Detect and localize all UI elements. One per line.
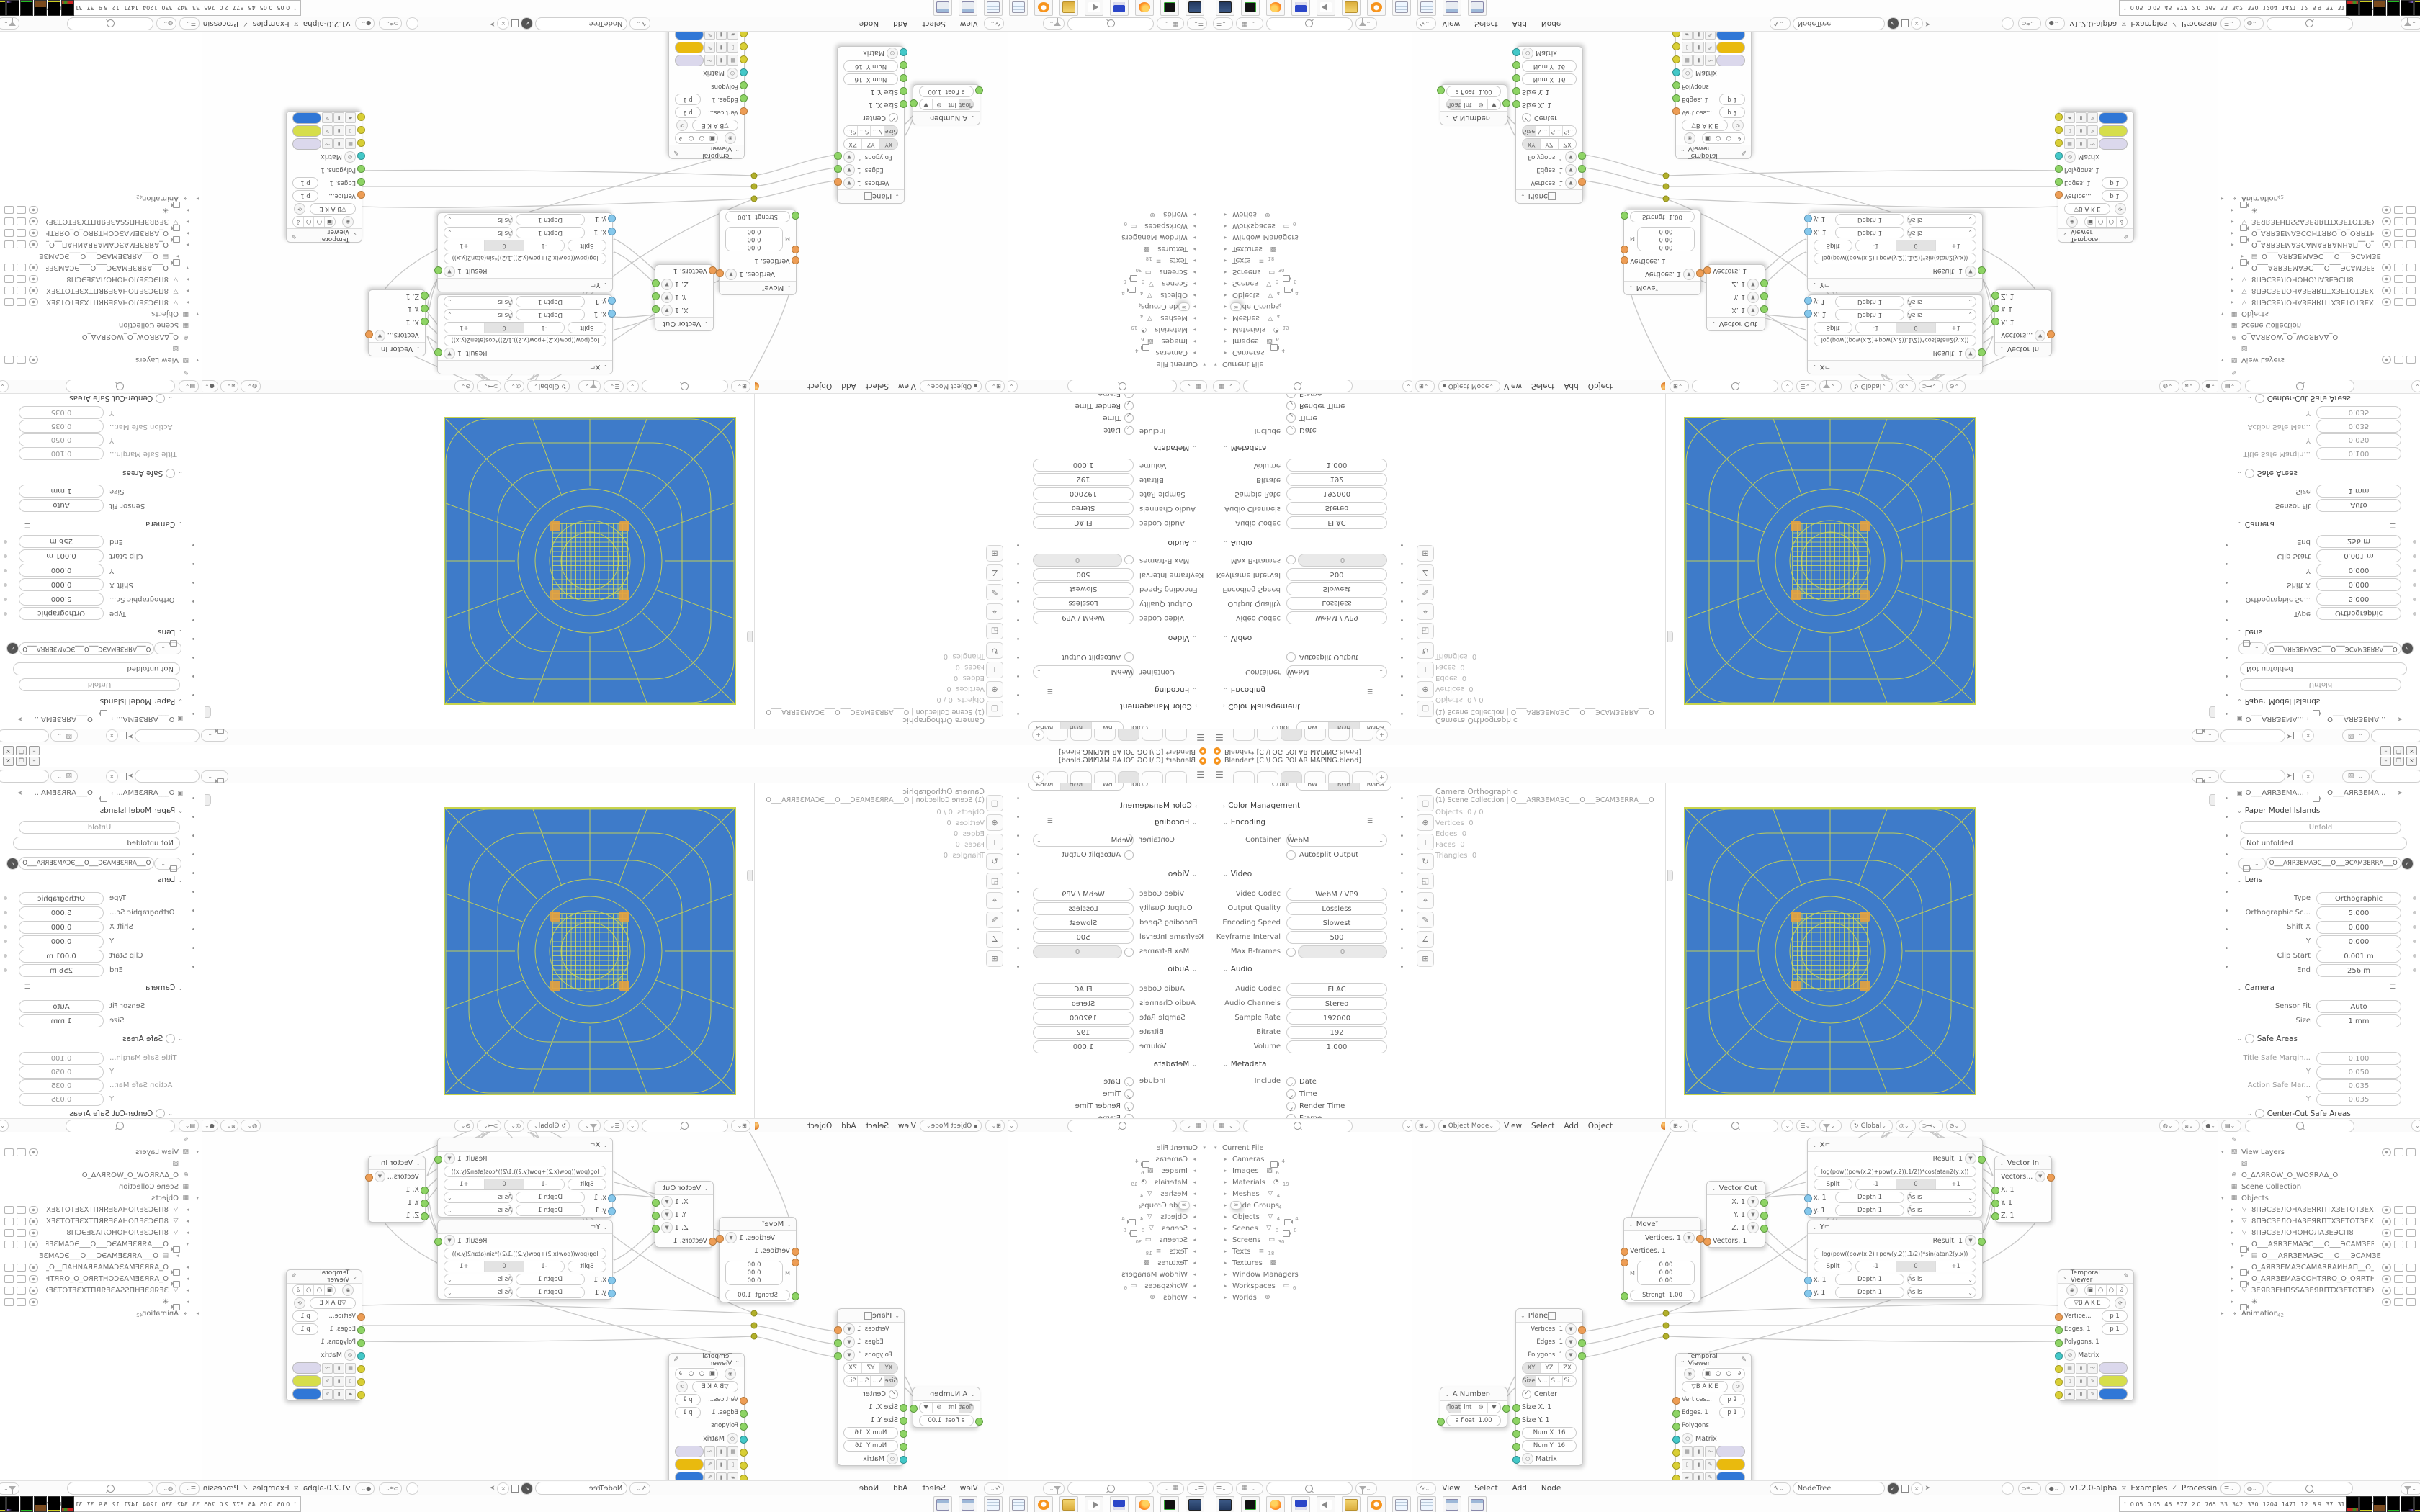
node-formula-x[interactable]: ⌄X⌐ Result. 1▼ log(pow((pow(x,2)+pow(y,2…	[1807, 1138, 1983, 1218]
outliner-row[interactable]: ▾ O___АЯRЗЕМАЭС___О___ЭСАМЗЕRRА	[2221, 262, 2418, 274]
editor-type-button[interactable]: ☰⌄	[1213, 18, 1233, 30]
metadata-check-row[interactable]: Render Time	[1286, 400, 1347, 412]
filter-button[interactable]: ⌄	[1819, 1120, 1842, 1132]
viewport-b[interactable]	[1665, 783, 2218, 1118]
datablock-row[interactable]: ▸ Meshes 4	[1214, 1188, 1407, 1200]
gizmo-dropdown[interactable]: ◎⌄	[1896, 1120, 1916, 1132]
wrap-plus[interactable]: +1	[444, 1179, 484, 1189]
node-move[interactable]: ⌄Move⤒ Vertices. 1▼ Vertices. 1 M 0.00 0…	[1623, 210, 1701, 295]
wrap-zero[interactable]: 0	[484, 323, 524, 333]
physics-icon[interactable]: •	[1011, 960, 1025, 974]
menu-view[interactable]: View	[1442, 19, 1460, 28]
sidebar-toggle-handle[interactable]	[205, 794, 211, 806]
datablock-name-field[interactable]: O___АЯRЗЕМАЭС___О___ЭСАМЗЕRRА___О	[19, 642, 154, 655]
prop-value[interactable]: 0.000	[19, 935, 104, 948]
datablock-row[interactable]: ▸ Window Managers	[1214, 232, 1407, 243]
datablock-row[interactable]: ▸ Scenes 8 8	[1013, 278, 1206, 289]
metadata-check-row[interactable]: Date	[1286, 424, 1347, 436]
expand-arrow-icon[interactable]: ▸	[1188, 212, 1196, 217]
expand-arrow-icon[interactable]: ▸	[2221, 196, 2229, 202]
pin-icon[interactable]: ➤	[490, 20, 496, 27]
transform-tool-icon[interactable]: ⌖	[1417, 603, 1434, 620]
modifier-icon[interactable]: •	[1395, 575, 1409, 589]
float-toggle[interactable]: float	[1447, 99, 1461, 109]
datablock-row[interactable]: ▸ Workspaces 6	[1013, 220, 1206, 232]
prop-value[interactable]: 256 m	[2316, 964, 2401, 977]
socket-color-in[interactable]	[357, 1365, 365, 1373]
outliner-row[interactable]: ▸ 8ПЭСЗЕЛОНÖНОЛАЗЕЭСП8	[2, 274, 199, 285]
draw-circle2-toggle[interactable]: ○	[686, 1369, 696, 1379]
outliner-row[interactable]: ▸ 8ПЭСЗЕЛОНАЗЕЯRПТХЗЕТОТЗЕХТПЯI	[2, 297, 199, 308]
editor-type-button[interactable]: ☰⌄	[179, 18, 200, 30]
presets-icon[interactable]: ☰	[2390, 521, 2396, 528]
notepad-icon[interactable]	[984, 0, 1003, 16]
numy-field[interactable]: Num Y 16	[1522, 60, 1577, 72]
hide-viewport-eye-icon[interactable]	[29, 1148, 38, 1156]
expand-arrow-icon[interactable]: ▸	[1188, 1191, 1196, 1197]
asis-dropdown[interactable]: As is⌄	[1907, 1287, 1976, 1298]
scene-selector[interactable]: ⌄ ➤ ×	[106, 729, 228, 742]
snap-button[interactable]: ⊃⌗⌄	[2018, 1482, 2041, 1495]
output-icon[interactable]: •	[2220, 669, 2233, 683]
wrap-plus[interactable]: +1	[1936, 1179, 1976, 1189]
animate-dot[interactable]	[4, 540, 7, 544]
expand-arrow-icon[interactable]: ▸	[181, 1264, 189, 1270]
prop-value[interactable]: 1 mm	[19, 485, 104, 498]
outliner-row[interactable]: ▸ ✳	[2, 1296, 199, 1308]
prop-value[interactable]: 500	[1033, 568, 1134, 581]
disable-render-camera-icon[interactable]	[2406, 356, 2416, 364]
disable-viewport-icon[interactable]	[2394, 299, 2403, 307]
socket-x-in[interactable]	[608, 1194, 616, 1202]
wrap-minus[interactable]: -1	[524, 1261, 564, 1272]
disable-viewport-icon[interactable]	[17, 1148, 26, 1156]
face-color-swatch[interactable]	[675, 32, 704, 40]
expand-arrow-icon[interactable]: ▸	[181, 1299, 189, 1305]
socket-color-in[interactable]	[357, 139, 365, 147]
close-icon[interactable]: ×	[2302, 730, 2314, 742]
p-field[interactable]: p 1	[2102, 1310, 2128, 1322]
checkbox-checked[interactable]	[1286, 413, 1296, 423]
node-header[interactable]: ⌄Y⌐	[1808, 1220, 1982, 1234]
calculator-icon[interactable]	[1443, 1496, 1461, 1512]
render-icon[interactable]: •	[1011, 688, 1025, 701]
expand-arrow-icon[interactable]: ▸	[1188, 1295, 1196, 1300]
socket-numx-in[interactable]	[900, 74, 907, 82]
axis-xy[interactable]: XY	[879, 139, 897, 149]
graph-applet[interactable]	[61, 0, 74, 16]
disable-viewport-icon[interactable]	[2394, 1148, 2403, 1156]
node-header[interactable]: ⌄Y⌐	[438, 278, 612, 292]
asis-dropdown[interactable]: As is⌄	[1907, 1205, 1976, 1216]
outliner-row[interactable]: ▸ O___АЯRЗЕМАЭС___О___ЭСАМЗЕ	[2, 1250, 199, 1261]
vector-y-field[interactable]: 0.00	[726, 1269, 782, 1277]
close-button[interactable]: ×	[2406, 757, 2417, 766]
socket-color-in[interactable]	[2055, 1378, 2063, 1386]
outliner-row[interactable]: O_ΔΛЯROW_O_WOЯRΛΔ_О	[2221, 1169, 2418, 1181]
depth-field[interactable]: Depth 1	[1835, 227, 1904, 238]
socket-sizex-in[interactable]	[1512, 1404, 1520, 1412]
display-mode-button[interactable]: ◍⌄	[156, 18, 176, 30]
socket-matrix-in[interactable]	[2055, 1352, 2063, 1360]
disable-render-camera-icon[interactable]	[2406, 1264, 2416, 1272]
prop-value[interactable]: 0.000	[19, 564, 104, 577]
expand-arrow-icon[interactable]: ▸	[2231, 1230, 2239, 1236]
unlink-icon[interactable]: ×	[1911, 1482, 1923, 1495]
outliner-row[interactable]: ▸ O_АЯRЗЕМАЭСАМАRRАИНАП__О__ПА	[2221, 239, 2418, 251]
expand-arrow-icon[interactable]: ▸	[191, 196, 199, 202]
socket-x-in[interactable]	[1991, 1187, 1999, 1194]
socket-vector-in[interactable]	[1621, 246, 1628, 253]
node-header[interactable]: ⌄Plane	[838, 1309, 904, 1323]
outliner-row[interactable]: ▸ O_АЯRЗЕМАЭСОНТЯRО_О_ОЯRТНОЭСУ	[2221, 1273, 2418, 1284]
wrap-zero[interactable]: 0	[484, 240, 524, 251]
center-cut-panel[interactable]: ⌄Center-Cut Safe Areas	[69, 1109, 173, 1118]
menu-node[interactable]: Node	[1541, 19, 1561, 28]
expand-arrow-icon[interactable]: ▾	[2221, 311, 2229, 317]
wrap-minus[interactable]: -1	[1856, 323, 1896, 333]
prop-value[interactable]: Stereo	[1033, 997, 1134, 1010]
socket-matrix-in[interactable]	[2055, 152, 2063, 160]
animate-dot[interactable]	[4, 612, 7, 616]
transform-tool-icon[interactable]: ⌖	[1417, 892, 1434, 909]
animate-dot[interactable]	[2413, 583, 2416, 587]
float-toggle[interactable]: float	[959, 1403, 973, 1413]
viewlayer-selector[interactable]: ⌄	[2342, 729, 2420, 742]
rotate-tool-icon[interactable]: ↻	[1417, 642, 1434, 659]
move-tool-icon[interactable]: +	[986, 834, 1003, 850]
collapse-chevron-icon[interactable]: ⌄	[0, 1120, 9, 1132]
node-header[interactable]: ⌄X⌐	[438, 1138, 612, 1152]
folder-icon[interactable]	[1342, 1496, 1361, 1512]
disable-render-camera-icon[interactable]	[2406, 1275, 2416, 1283]
display-mode-button[interactable]: ⌄	[1157, 1482, 1184, 1495]
tool-icon[interactable]: •	[1395, 706, 1409, 720]
disable-viewport-icon[interactable]	[17, 230, 26, 238]
object-icon[interactable]: •	[1395, 594, 1409, 608]
prop-value[interactable]: WebM / VP9	[1286, 611, 1387, 624]
color-mode-rgb[interactable]: RGB	[1329, 722, 1361, 729]
depth-field[interactable]: Depth 1	[516, 296, 585, 307]
expand-arrow-icon[interactable]: ▸	[1188, 1168, 1196, 1174]
socket-vector-in[interactable]	[792, 1259, 799, 1266]
expand-arrow-icon[interactable]: ▸	[2231, 276, 2239, 282]
center-cut-panel[interactable]: ⌄Center-Cut Safe Areas	[2247, 394, 2351, 403]
workspace-tab[interactable]	[1257, 771, 1278, 784]
audio-panel[interactable]: ⌄Audio	[1168, 539, 1197, 547]
filter-button[interactable]: ⌄	[1355, 1482, 1378, 1495]
vector-y-field[interactable]: 0.00	[726, 235, 782, 243]
socket-color-in[interactable]	[1672, 55, 1680, 63]
overlays-button[interactable]: ◍⌄	[2159, 380, 2179, 392]
socket-edges-in[interactable]	[357, 178, 365, 186]
disable-viewport-icon[interactable]	[2394, 241, 2403, 249]
datablock-row[interactable]: ▸ Materials 19	[1013, 1176, 1206, 1188]
wrap-minus[interactable]: -1	[1856, 1261, 1896, 1272]
socket-vertices-in[interactable]	[2055, 1313, 2063, 1321]
socket-y-in[interactable]	[1991, 305, 1999, 312]
gpu-icon[interactable]	[406, 18, 418, 30]
checkbox-checked[interactable]	[1124, 1102, 1134, 1111]
autosplit-checkbox[interactable]	[1286, 652, 1296, 662]
numx-field[interactable]: Num X 16	[843, 1427, 898, 1439]
unfold-button[interactable]: Unfold	[19, 821, 180, 834]
menu-select[interactable]: Select	[1474, 1484, 1497, 1493]
datablock-row[interactable]: ▸ Workspaces 6	[1013, 1280, 1206, 1292]
mode-n[interactable]: N...	[1536, 1376, 1550, 1386]
datablock-row[interactable]: ▸ Images 6	[1214, 1165, 1407, 1176]
disable-viewport-icon[interactable]	[17, 1229, 26, 1237]
editor-type-button[interactable]: ☰⌄	[179, 1482, 200, 1495]
prop-value[interactable]: 1.000	[1286, 459, 1387, 472]
measure-tool-icon[interactable]: ∠	[986, 931, 1003, 948]
toolbar-toggle-handle[interactable]	[1667, 631, 1673, 642]
gizmo-dropdown[interactable]: ◎⌄	[504, 1120, 524, 1132]
expand-arrow-icon[interactable]: ▸	[191, 1310, 199, 1316]
pin-icon[interactable]: ➤	[1925, 1485, 1931, 1492]
object-icon[interactable]: •	[1011, 594, 1025, 608]
cursor-tool-icon[interactable]: ⊕	[1417, 681, 1434, 698]
maxb-value[interactable]: 0	[1298, 945, 1387, 958]
search-input[interactable]	[67, 17, 153, 30]
eye-icon[interactable]: ◉	[342, 216, 354, 228]
sidebar-toggle-handle[interactable]	[2209, 706, 2215, 718]
floppy-64-icon[interactable]	[1291, 1496, 1310, 1512]
outliner-row[interactable]: ▾ O___АЯRЗЕМАЭС___О___ЭСАМЗЕRRА	[2, 1238, 199, 1250]
menu-add[interactable]: Add	[841, 382, 856, 391]
wrap-plus[interactable]: +1	[444, 323, 484, 333]
node-vector-out[interactable]: ⌄Vector Out X. 1▼ Y. 1▼ Z. 1▼ Vectors. 1	[655, 1181, 714, 1248]
expand-arrow-icon[interactable]: ▾	[181, 1241, 189, 1247]
wrap-plus[interactable]: +1	[1936, 1261, 1976, 1272]
outliner-row[interactable]: ▸ O_АЯRЗЕМАЭСАМАRRАИНАП__О__ПА	[2, 239, 199, 251]
filter-button[interactable]: ⌄	[2401, 18, 2420, 30]
node-vector-in[interactable]: ⌄Vector In Vectors...▼ X. 1 Y. 1 Z. 1	[368, 1156, 426, 1223]
socket-color-in[interactable]	[2055, 1365, 2063, 1373]
physics-icon[interactable]: •	[1395, 538, 1409, 552]
pin-icon[interactable]: ➤	[1925, 20, 1931, 27]
axis-yz[interactable]: YZ	[861, 139, 879, 149]
prop-value[interactable]: Stereo	[1286, 502, 1387, 515]
mode-si[interactable]: Si...	[844, 1376, 857, 1386]
node-plane[interactable]: ⌄Plane Vertices. 1▼ Edges. 1▼ Polygons. …	[837, 1308, 905, 1466]
depth-field[interactable]: Depth 1	[516, 309, 585, 320]
datablock-type-button[interactable]: ⌄	[154, 643, 181, 655]
camera-panel[interactable]: ⌄Camera	[145, 520, 183, 528]
notepad-icon[interactable]	[1417, 1496, 1436, 1512]
outliner-row[interactable]	[2, 1135, 199, 1146]
transform-tool-icon[interactable]: ⌖	[986, 892, 1003, 909]
disable-render-camera-icon[interactable]	[2406, 276, 2416, 284]
hide-viewport-eye-icon[interactable]	[2382, 218, 2391, 226]
outliner-row[interactable]: ▸ 8ПЭСЗЕЛОНАЗЕЯRПТХЗЕТОТЗЕХТПЯI	[2221, 297, 2418, 308]
copy-icon[interactable]	[511, 20, 519, 28]
prop-value[interactable]: 192	[1286, 473, 1387, 486]
socket-number-out[interactable]	[910, 99, 918, 107]
physics-icon[interactable]: •	[1395, 960, 1409, 974]
floppy-64-icon[interactable]	[1291, 0, 1310, 16]
checkbox-checked[interactable]	[1124, 413, 1134, 423]
scene-icon[interactable]: •	[187, 867, 200, 881]
color-management-panel[interactable]: ›Color Management	[1223, 702, 1300, 711]
unfold-button[interactable]: Unfold	[19, 678, 180, 691]
disable-viewport-icon[interactable]	[17, 356, 26, 364]
add-workspace-button[interactable]: +	[1376, 771, 1388, 783]
socket-z-out[interactable]	[652, 279, 660, 287]
prop-value[interactable]: 0.100	[2316, 447, 2401, 460]
formula-field[interactable]: log(pow((pow(x,2)+pow(y,2)),1/2))*sin(at…	[1814, 253, 1976, 264]
graph-applet[interactable]	[2401, 1496, 2414, 1512]
search-input[interactable]	[1067, 1482, 1154, 1495]
gear-icon[interactable]: ⚙	[1474, 99, 1487, 109]
tree-type-button[interactable]: ∿⌄	[1770, 1482, 1790, 1495]
metadata-check-row[interactable]: Date	[1073, 424, 1134, 436]
expand-chevrons-icon[interactable]: ⌃	[2123, 5, 2128, 12]
node-tree-name-field[interactable]: NodeTree	[535, 1482, 627, 1495]
expand-arrow-icon[interactable]: ▾	[1198, 361, 1206, 367]
expand-arrow-icon[interactable]: ▸	[1224, 1237, 1232, 1243]
collapse-chevron-icon[interactable]: ⌄	[2411, 1120, 2420, 1132]
float-toggle[interactable]: float	[1447, 1403, 1461, 1413]
socket-y-in[interactable]	[1991, 1200, 1999, 1207]
datablock-row[interactable]: ▸ Textures	[1013, 1257, 1206, 1269]
datablock-row[interactable]: ▸ Cameras 4	[1013, 1153, 1206, 1165]
datablock-row[interactable]: ▸ Materials 19	[1214, 1176, 1407, 1188]
presets-icon[interactable]: ☰	[24, 521, 30, 528]
pin-icon[interactable]: ➤	[128, 773, 134, 780]
workspace-tab[interactable]	[1257, 728, 1278, 741]
select-box-tool-icon[interactable]: ▢	[1417, 701, 1434, 717]
socket-result-out[interactable]	[1978, 348, 1986, 356]
socket-polygons-in[interactable]	[357, 1339, 365, 1347]
datablock-type-button[interactable]: ⌄	[2238, 858, 2266, 870]
node-tree-name-field[interactable]: NodeTree	[1793, 17, 1885, 30]
socket-edges-out[interactable]	[1578, 165, 1586, 173]
hide-viewport-eye-icon[interactable]	[2382, 1148, 2391, 1156]
hamburger-menu-icon[interactable]: ☰	[1216, 770, 1224, 780]
prop-value[interactable]: 5.000	[19, 906, 104, 919]
prop-value[interactable]: 1.000	[1033, 1040, 1134, 1053]
expand-arrow-icon[interactable]: ▸	[181, 207, 189, 213]
formula-field[interactable]: log(pow((pow(x,2)+pow(y,2)),1/2))*sin(at…	[1814, 1248, 1976, 1259]
display-options-button[interactable]: ☰⌄	[1796, 380, 1816, 392]
graph-applet[interactable]	[2346, 0, 2359, 16]
viewlayer-selector[interactable]: ⌄	[0, 729, 78, 742]
viewlayer-icon[interactable]: •	[1395, 848, 1409, 862]
edge-color-swatch[interactable]	[675, 1459, 704, 1470]
search-input[interactable]	[2267, 17, 2353, 30]
animate-dot[interactable]	[4, 925, 7, 929]
dropdown-icon[interactable]: ▼	[1488, 99, 1500, 109]
prop-value[interactable]: 0.100	[19, 1052, 104, 1065]
blender-icon[interactable]	[1367, 0, 1386, 16]
prop-value[interactable]: Lossless	[1033, 597, 1134, 610]
expand-arrow-icon[interactable]: ▸	[2221, 1310, 2229, 1316]
object-icon[interactable]: •	[1011, 904, 1025, 918]
firefox-icon[interactable]	[1266, 1496, 1285, 1512]
node-a-number[interactable]: ⌄A Number· floatint⚙▼ a float 1.00	[1440, 1387, 1507, 1428]
metadata-check-row[interactable]: Frame	[1073, 1112, 1134, 1118]
disable-render-camera-icon[interactable]	[2406, 207, 2416, 215]
draw-circle-toggle[interactable]: ○	[1713, 133, 1724, 143]
expand-arrow-icon[interactable]: ▾	[1214, 1145, 1222, 1151]
node-header[interactable]: ⌄Y⌐	[438, 1220, 612, 1234]
editor-type-button[interactable]: ∿⌄	[984, 1482, 1004, 1495]
menu-add[interactable]: Add	[841, 1122, 856, 1130]
vector-x-field[interactable]: 0.00	[726, 243, 782, 251]
vertex-color-swatch[interactable]	[1716, 55, 1745, 66]
menu-select[interactable]: Select	[866, 382, 889, 391]
expand-arrow-icon[interactable]: ▾	[181, 265, 189, 271]
color-mode-bw[interactable]: BW	[1091, 783, 1123, 790]
encoding-panel[interactable]: ⌄Encoding	[1155, 685, 1197, 694]
prop-value[interactable]: Orthographic	[19, 892, 104, 905]
color-mode-rgb[interactable]: RGB	[1060, 722, 1092, 729]
socket-strength-in[interactable]	[1621, 1292, 1628, 1300]
outliner-row[interactable]: ▸ ЗЕЯRЗЕНПSSАЗЕЯRПТХЗЕТОТЗЕХТПS	[2, 216, 199, 228]
calculator-icon[interactable]	[933, 0, 952, 16]
scene-icon[interactable]: •	[2220, 867, 2233, 881]
prop-value[interactable]: 500	[1286, 931, 1387, 944]
datablock-row[interactable]: ▸ Materials 19	[1214, 324, 1407, 336]
int-toggle[interactable]: int	[946, 99, 959, 109]
expand-arrow-icon[interactable]: ▸	[1188, 350, 1196, 356]
scene-selector[interactable]: ⌄ ➤ ×	[2192, 729, 2314, 742]
prop-value[interactable]: Slowest	[1033, 582, 1134, 595]
disable-viewport-icon[interactable]	[2394, 1218, 2403, 1225]
prop-value[interactable]: 500	[1033, 931, 1134, 944]
data-icon[interactable]: •	[1011, 942, 1025, 955]
expand-arrow-icon[interactable]: ▸	[181, 276, 189, 282]
socket-float-in[interactable]	[1437, 1418, 1445, 1426]
socket-y-in[interactable]	[1804, 297, 1812, 305]
datablock-row[interactable]: ▸ Node Groups 4	[1214, 301, 1407, 312]
disable-render-camera-icon[interactable]	[2406, 299, 2416, 307]
mode-size[interactable]: Size	[1523, 1376, 1536, 1386]
prop-value[interactable]: 0.050	[19, 433, 104, 446]
expand-arrow-icon[interactable]: ▸	[1188, 338, 1196, 344]
socket-strength-in[interactable]	[792, 212, 799, 220]
p-field[interactable]: p 2	[1719, 1394, 1745, 1405]
cursor-tool-icon[interactable]: ⊕	[986, 681, 1003, 698]
depth-field[interactable]: Depth 1	[1835, 1192, 1904, 1203]
filter-button[interactable]: ⌄	[578, 1120, 601, 1132]
menu-view[interactable]: View	[1504, 1122, 1522, 1130]
node-temporal-viewer-2[interactable]: ⌄Temporal Viewer✎ ◉▣○○∂ ▽ B A K E⟳ Verti…	[1675, 1353, 1752, 1480]
socket-edges-in[interactable]	[740, 94, 748, 102]
copy-icon[interactable]	[511, 1485, 519, 1493]
formula-field[interactable]: log(pow((pow(x,2)+pow(y,2)),1/2))*cos(at…	[444, 1166, 606, 1177]
animate-dot[interactable]	[2413, 968, 2416, 972]
maxb-value[interactable]: 0	[1298, 554, 1387, 567]
autosplit-row[interactable]: Autosplit Output	[1062, 652, 1134, 662]
color-management-panel[interactable]: ›Color Management	[1120, 702, 1197, 711]
cursor-tool-icon[interactable]: ⊕	[986, 814, 1003, 831]
disable-render-camera-icon[interactable]	[4, 1229, 14, 1237]
prop-value[interactable]: 192000	[1033, 487, 1134, 500]
autosplit-row[interactable]: Autosplit Output	[1286, 850, 1358, 860]
node-move[interactable]: ⌄Move⤒ Vertices. 1▼ Vertices. 1 M 0.00 0…	[719, 210, 797, 295]
expand-arrow-icon[interactable]: ▸	[171, 1253, 179, 1259]
maxb-checkbox[interactable]	[1124, 948, 1134, 957]
socket-y-out[interactable]	[1760, 292, 1768, 300]
asis-dropdown[interactable]: As is⌄	[444, 309, 513, 320]
unfold-button[interactable]: Unfold	[2240, 678, 2401, 691]
paper-model-panel[interactable]: ⌄Paper Model Islands	[100, 806, 183, 815]
datablock-row[interactable]: ▸ Node Groups 4	[1214, 1200, 1407, 1211]
transform-orientation-dropdown[interactable]: ↻ Global⌄	[527, 1120, 570, 1132]
expand-arrow-icon[interactable]: ▸	[1224, 1168, 1232, 1174]
